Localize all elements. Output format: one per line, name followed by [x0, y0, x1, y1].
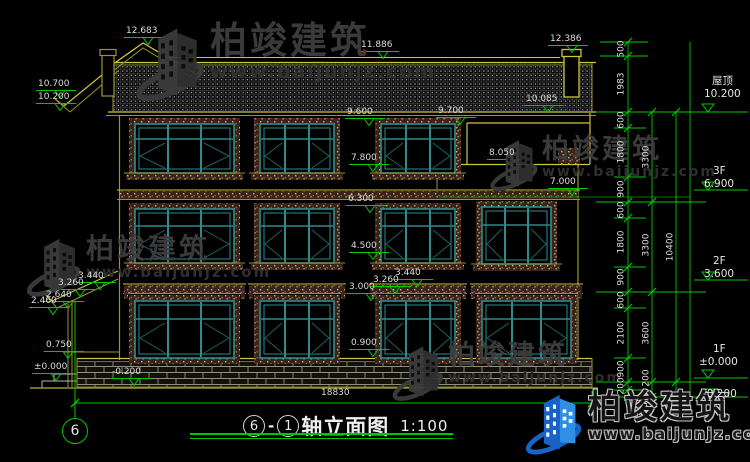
watermark-brand: 柏竣建筑	[86, 234, 271, 263]
brand-logo-icon	[490, 136, 542, 194]
watermark-url: www.baijunjz.com	[210, 61, 436, 84]
watermark-brand: 柏竣建筑	[448, 342, 623, 370]
brand-logo-icon	[392, 342, 448, 404]
cad-elevation-screenshot: { "palette":{ "background":"#000000", "d…	[0, 0, 750, 462]
watermark-url: www.baijunjz.com	[588, 425, 750, 443]
brand-logo-icon	[524, 390, 588, 458]
title-underline-thin	[190, 438, 453, 439]
watermark-top: 柏竣建筑 www.baijunjz.com	[136, 22, 436, 106]
watermark-url: www.baijunjz.com	[542, 164, 717, 181]
watermark-brand: 柏竣建筑	[210, 22, 436, 61]
watermark-brand: 柏竣建筑	[588, 390, 750, 425]
title-text: 轴立面图	[301, 411, 389, 441]
drawing-title: 6 - 1 轴立面图 1:100	[243, 411, 448, 441]
watermark-url: www.baijunjz.com	[448, 370, 623, 387]
watermark-left: 柏竣建筑 www.baijunjz.com	[26, 234, 271, 300]
brand-watermark-colored: 柏竣建筑 www.baijunjz.com	[524, 390, 750, 458]
title-underline	[190, 433, 453, 435]
watermark-brand: 柏竣建筑	[542, 136, 717, 164]
axis-bubble-6: 6	[62, 418, 88, 444]
watermark-url: www.baijunjz.com	[86, 263, 271, 281]
watermark-right: 柏竣建筑 www.baijunjz.com	[490, 136, 717, 194]
brand-logo-icon	[26, 234, 86, 300]
brand-logo-icon	[136, 22, 210, 106]
